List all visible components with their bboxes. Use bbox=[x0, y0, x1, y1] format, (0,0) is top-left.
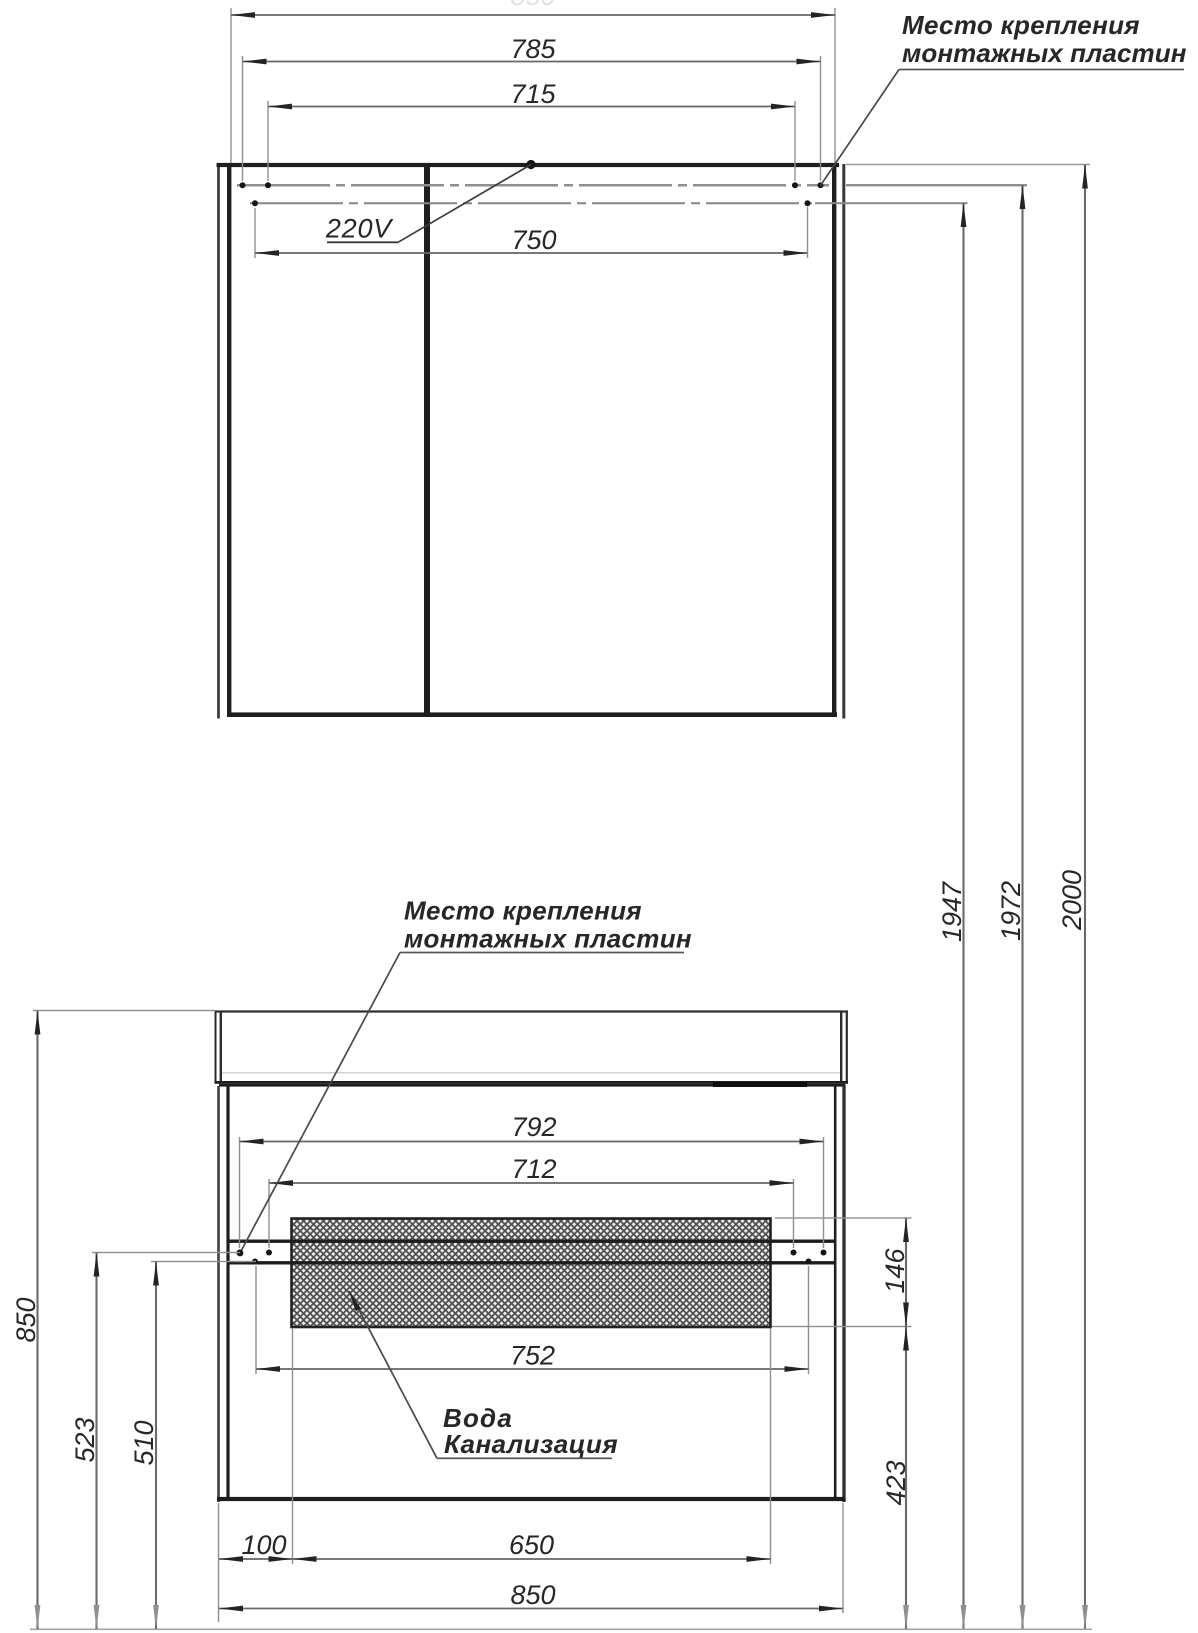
svg-text:850: 850 bbox=[510, 0, 555, 11]
svg-text:850: 850 bbox=[510, 1580, 555, 1610]
svg-text:715: 715 bbox=[510, 79, 556, 109]
svg-text:2000: 2000 bbox=[1057, 870, 1087, 931]
svg-text:1947: 1947 bbox=[937, 881, 967, 942]
svg-text:монтажных пластин: монтажных пластин bbox=[902, 38, 1187, 68]
svg-text:712: 712 bbox=[511, 1154, 556, 1184]
svg-text:650: 650 bbox=[509, 1530, 554, 1560]
svg-text:146: 146 bbox=[880, 1247, 910, 1293]
svg-text:423: 423 bbox=[881, 1460, 911, 1505]
svg-text:850: 850 bbox=[11, 1297, 41, 1342]
svg-text:752: 752 bbox=[510, 1341, 555, 1371]
svg-text:100: 100 bbox=[241, 1530, 286, 1560]
svg-text:монтажных пластин: монтажных пластин bbox=[404, 924, 692, 954]
svg-text:1972: 1972 bbox=[996, 881, 1026, 941]
svg-text:Место крепления: Место крепления bbox=[902, 10, 1140, 40]
svg-text:750: 750 bbox=[511, 225, 556, 255]
svg-text:220V: 220V bbox=[325, 214, 394, 244]
svg-text:510: 510 bbox=[129, 1420, 159, 1465]
svg-text:523: 523 bbox=[70, 1417, 100, 1462]
svg-text:792: 792 bbox=[511, 1112, 556, 1142]
svg-text:785: 785 bbox=[510, 34, 556, 64]
svg-text:Место крепления: Место крепления bbox=[404, 896, 642, 926]
svg-text:Канализация: Канализация bbox=[444, 1429, 618, 1459]
